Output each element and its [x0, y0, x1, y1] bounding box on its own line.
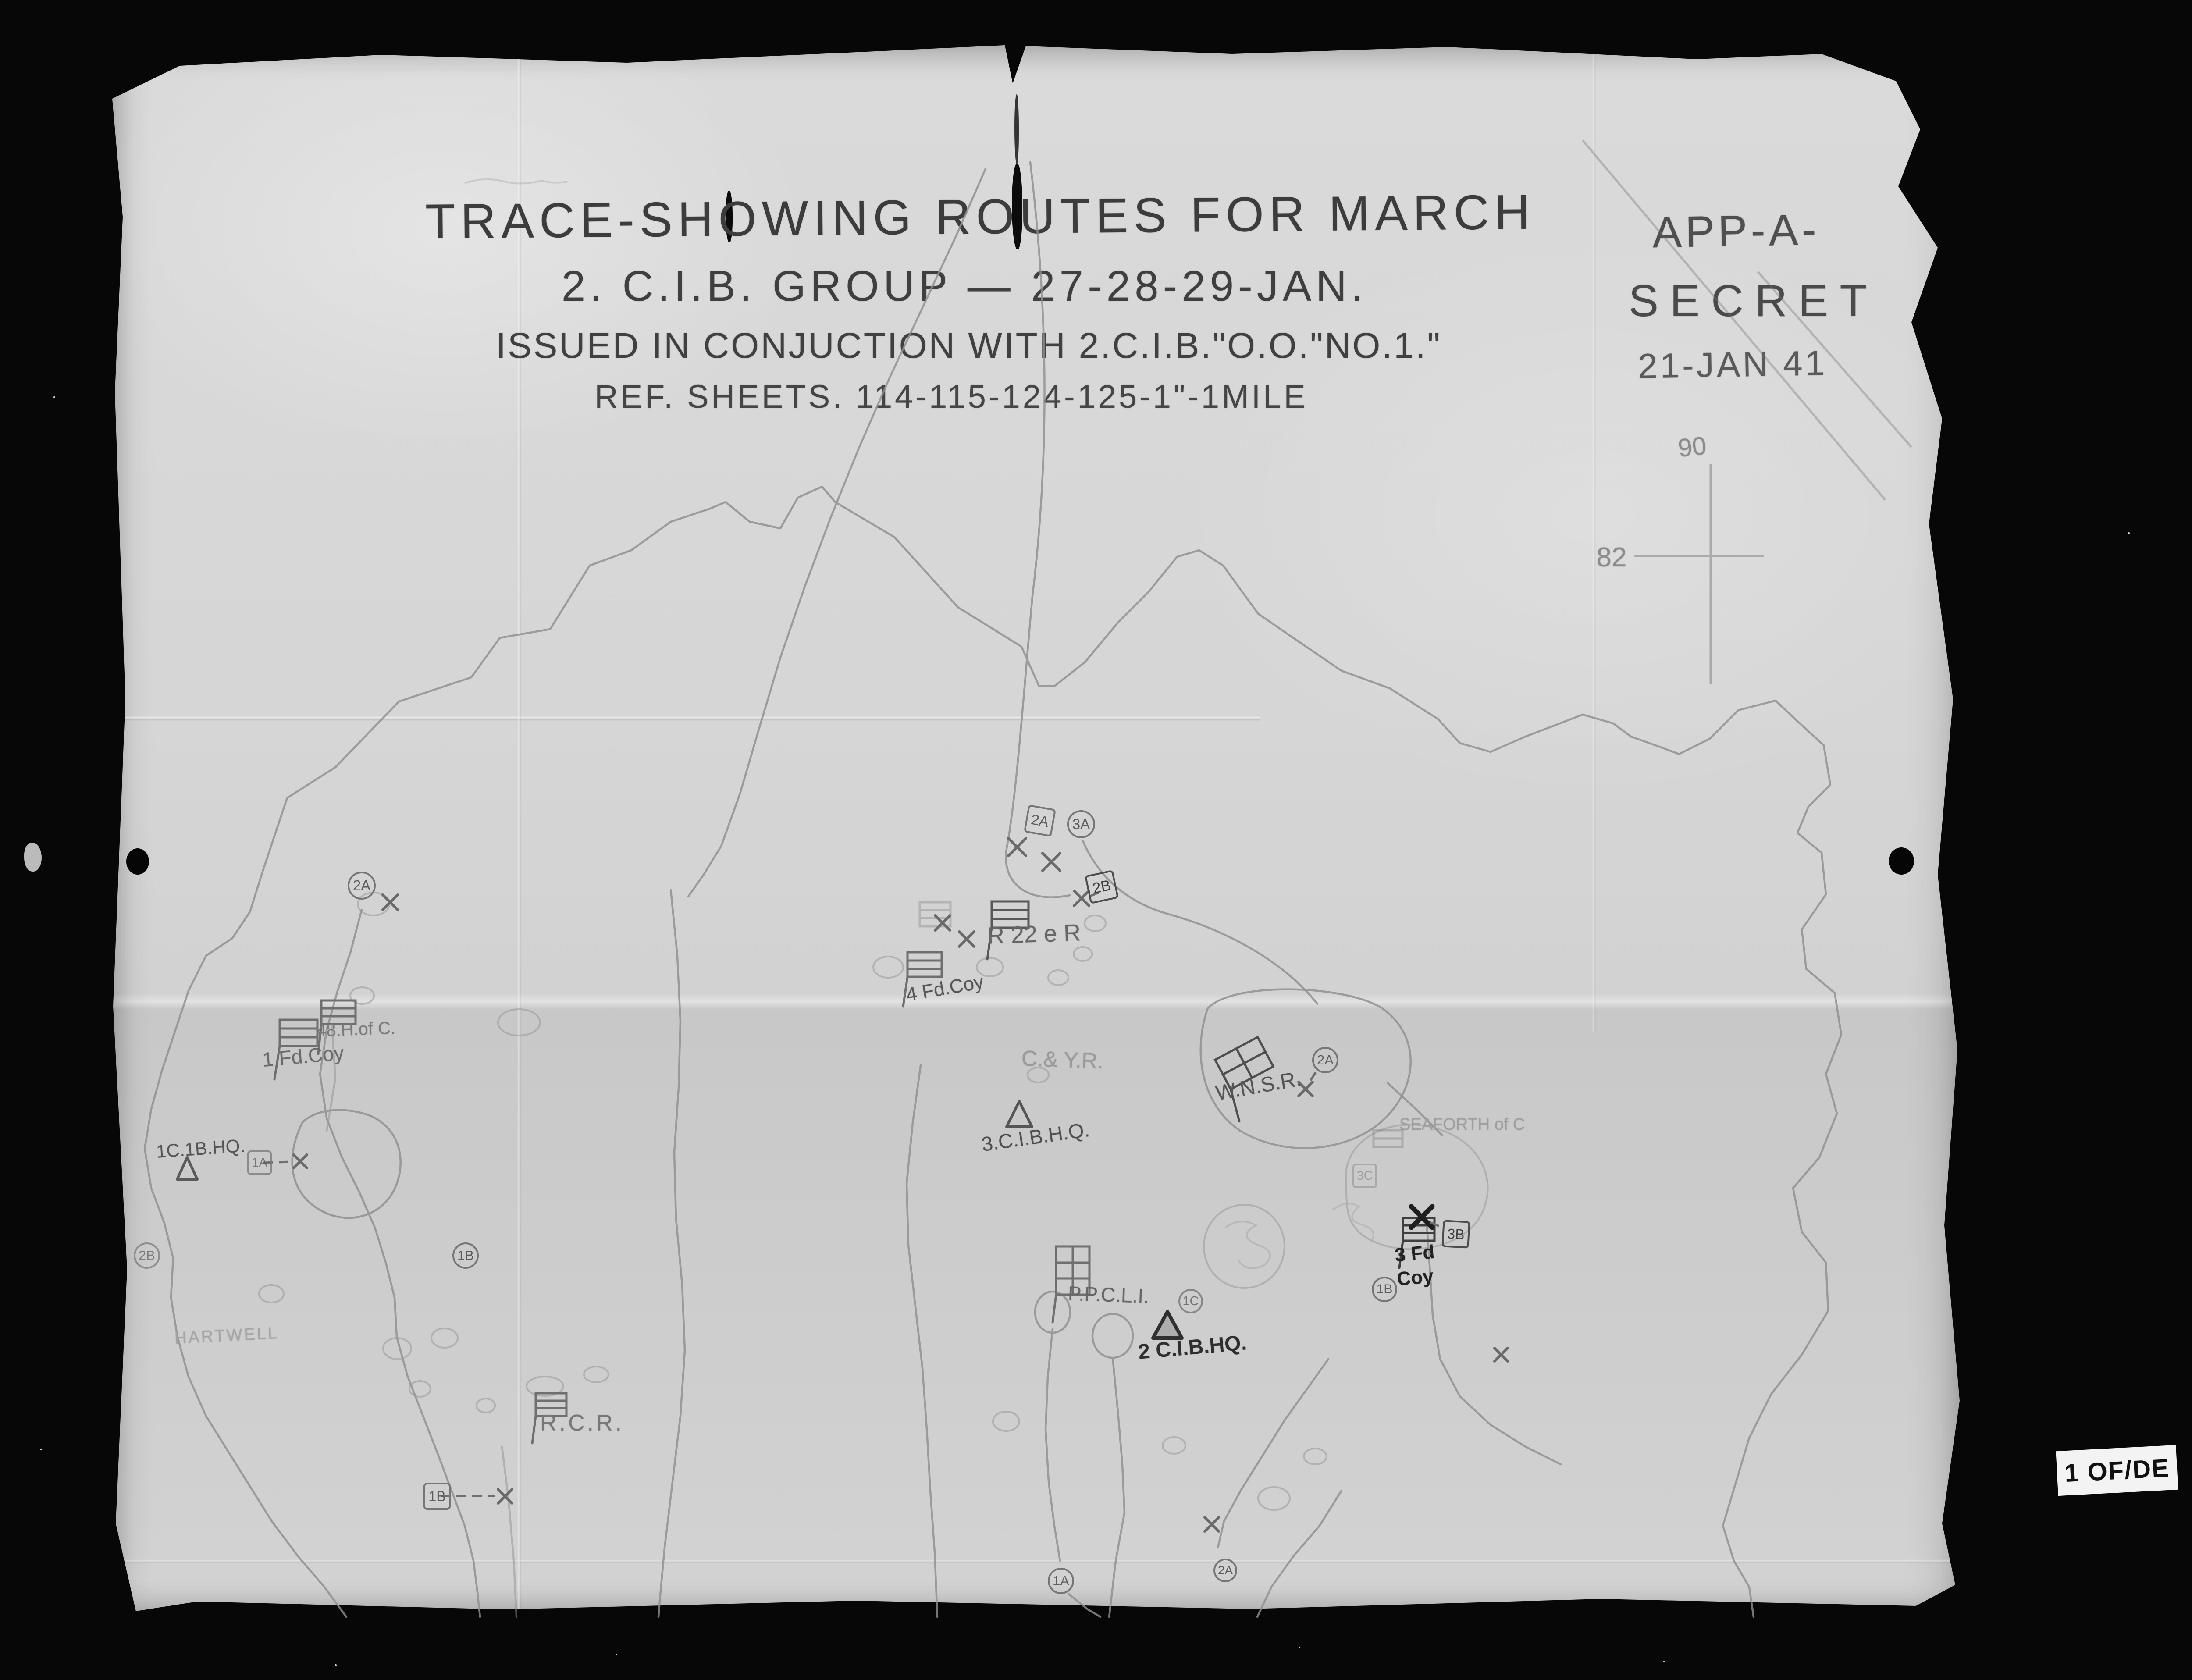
grid-easting: 82 [1585, 542, 1638, 573]
fold-crease-vertical [1592, 42, 1596, 1032]
tear-mark [1014, 94, 1019, 164]
dust-speck [1299, 1647, 1300, 1648]
dust-speck [53, 396, 55, 398]
fold-crease-horizontal [110, 716, 1260, 721]
hole-punch-left [126, 848, 149, 875]
unit-label: 48.H.of C. [316, 1018, 396, 1041]
page-number-label: 1 OF/DE [2056, 1445, 2178, 1496]
route-marker: 2A [1312, 1047, 1338, 1073]
classification-date: 21-JAN 41 [1627, 343, 1838, 387]
route-marker: 3A [1067, 810, 1095, 838]
map-title-line2: 2. C.I.B. GROUP — 27-28-29-JAN. [526, 261, 1403, 311]
route-marker: 3C [1352, 1164, 1377, 1188]
map-title-line3: ISSUED IN CONJUCTION WITH 2.C.I.B."O.O."… [421, 325, 1517, 367]
dust-speck [40, 1449, 42, 1450]
unit-label: R 22 e R [987, 919, 1081, 949]
route-marker: 2A [348, 872, 376, 900]
dust-speck [1663, 1661, 1665, 1662]
route-marker: 1A [1048, 1568, 1074, 1594]
route-marker: 2A [1024, 804, 1056, 837]
route-marker: 3B [1441, 1220, 1470, 1248]
grid-northing: 90 [1665, 430, 1720, 464]
route-marker: 1A [247, 1150, 272, 1175]
dust-speck [616, 1654, 617, 1655]
dust-speck [2128, 532, 2130, 534]
fold-crease-horizontal [110, 1559, 1964, 1564]
unit-label: P.P.C.L.I. [1068, 1281, 1149, 1308]
map-title-line1: TRACE-SHOWING ROUTES FOR MARCH [425, 184, 1512, 250]
appendix-label: APP-A- [1648, 205, 1824, 258]
route-marker: 2B [1085, 870, 1119, 904]
route-marker: 1B [1372, 1277, 1397, 1302]
route-marker: 2B [134, 1242, 160, 1269]
archival-scan: TRACE-SHOWING ROUTES FOR MARCH 2. C.I.B.… [0, 0, 2192, 1680]
map-title-line4: REF. SHEETS. 114-115-124-125-1"-1MILE [517, 378, 1385, 415]
security-classification: SECRET [1629, 275, 1848, 327]
unit-label: SEAFORTH of C [1399, 1115, 1525, 1134]
route-marker: 1C [1178, 1289, 1203, 1313]
route-marker: 2A [1213, 1559, 1237, 1582]
route-marker: 1B [423, 1483, 451, 1510]
fold-crease-vertical [517, 42, 522, 1618]
unit-label: R.C.R. [540, 1410, 624, 1436]
route-marker: 1B [452, 1242, 479, 1269]
film-artifact [24, 843, 42, 872]
unit-label: C.& Y.R. [1021, 1046, 1104, 1074]
dust-speck [335, 1664, 337, 1666]
hole-punch-right [1889, 847, 1914, 875]
